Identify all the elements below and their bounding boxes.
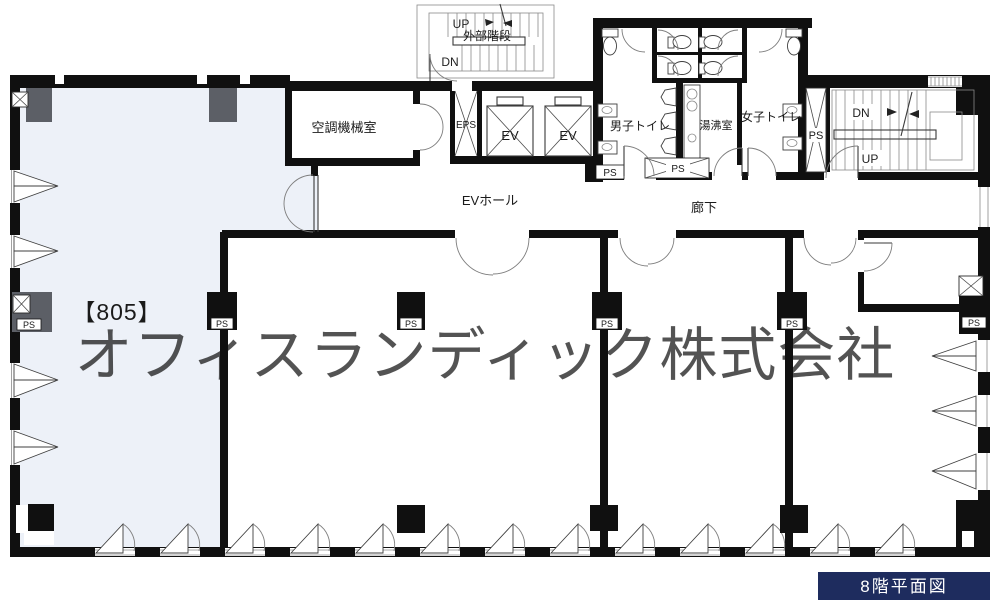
- window: [225, 524, 265, 556]
- machine-room-label: 空調機械室: [311, 120, 376, 135]
- svg-text:EV: EV: [559, 128, 577, 143]
- ps-box-toilet-left: PS: [596, 165, 624, 179]
- watermark-text: オフィスランディック株式会社: [75, 323, 896, 388]
- svg-text:PS: PS: [216, 319, 228, 329]
- womens-toilet-label: 女子トイレ: [741, 109, 801, 124]
- ps-box-toilet-center: PS: [645, 158, 709, 178]
- svg-text:EV: EV: [501, 128, 519, 143]
- internal-staircase: DN UP PS: [806, 88, 974, 178]
- ps-label: PS: [781, 318, 803, 329]
- room-c-double-door: [804, 238, 856, 265]
- window: [932, 395, 990, 427]
- machine-room-door: [420, 104, 443, 150]
- svg-text:PS: PS: [23, 320, 35, 330]
- eps-shaft: EPS: [455, 91, 477, 156]
- ps-shaft-top-left: [12, 92, 28, 107]
- pantry-label: 湯沸室: [700, 118, 733, 132]
- floor-plan-drawing: オフィスランディック株式会社: [0, 0, 1000, 609]
- elevator-car-2: EV: [545, 97, 591, 156]
- ps-label: PS: [962, 317, 986, 328]
- svg-text:PS: PS: [968, 318, 980, 328]
- corridor-label: 廊下: [691, 200, 717, 215]
- window: [932, 453, 990, 490]
- svg-text:PS: PS: [809, 130, 824, 142]
- svg-text:PS: PS: [601, 319, 613, 329]
- pantry-sink: [684, 85, 700, 160]
- floor-plan-page: オフィスランディック株式会社: [0, 0, 1000, 609]
- window: [875, 524, 915, 556]
- ps-label: PS: [596, 318, 618, 329]
- window: [355, 524, 395, 556]
- window: [615, 524, 655, 556]
- svg-text:PS: PS: [786, 319, 798, 329]
- svg-text:外部階段: 外部階段: [463, 28, 511, 43]
- ps-label: PS: [17, 319, 41, 330]
- window: [932, 340, 990, 372]
- room-b-double-door: [620, 238, 674, 266]
- ps-label: PS: [211, 318, 233, 329]
- unit-805-area: [20, 88, 318, 547]
- svg-text:PS: PS: [671, 164, 685, 175]
- mens-toilet-label: 男子トイレ: [610, 119, 670, 133]
- window: [420, 524, 460, 556]
- unit-805-label: 【805】: [72, 299, 161, 325]
- svg-text:EPS: EPS: [456, 120, 476, 131]
- window: [290, 524, 330, 556]
- svg-text:PS: PS: [405, 319, 417, 329]
- hatch-window: [928, 76, 962, 87]
- ps-shaft-stair: PS: [806, 88, 826, 172]
- title-box-label: 8階平面図: [860, 577, 947, 596]
- window: [680, 524, 720, 556]
- ps-label: PS: [400, 318, 422, 329]
- svg-text:PS: PS: [603, 168, 617, 179]
- svg-text:DN: DN: [441, 55, 458, 69]
- unit-805-room: [20, 88, 318, 547]
- womens-toilet-door: [748, 148, 776, 176]
- window: [810, 524, 850, 556]
- right-wall-windows: [932, 340, 990, 490]
- window: [485, 524, 525, 556]
- window: [745, 524, 785, 556]
- room-a-double-door: [456, 238, 529, 275]
- svg-text:DN: DN: [852, 106, 869, 120]
- elevator-car-1: EV: [487, 97, 533, 156]
- external-staircase: UP 外部階段 DN: [417, 4, 554, 81]
- window: [550, 524, 590, 556]
- elevator-block: EPS EV EV: [455, 91, 591, 156]
- ev-hall-label: EVホール: [462, 193, 518, 208]
- svg-text:UP: UP: [862, 152, 879, 166]
- title-box: 8階平面図: [818, 572, 990, 600]
- small-room-door: [864, 243, 892, 271]
